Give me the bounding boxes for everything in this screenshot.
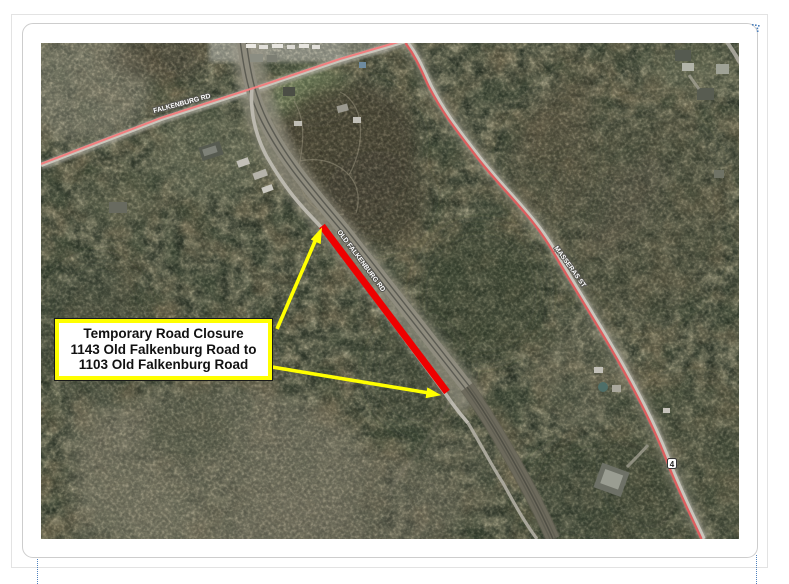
svg-text:4: 4 [670, 460, 675, 469]
